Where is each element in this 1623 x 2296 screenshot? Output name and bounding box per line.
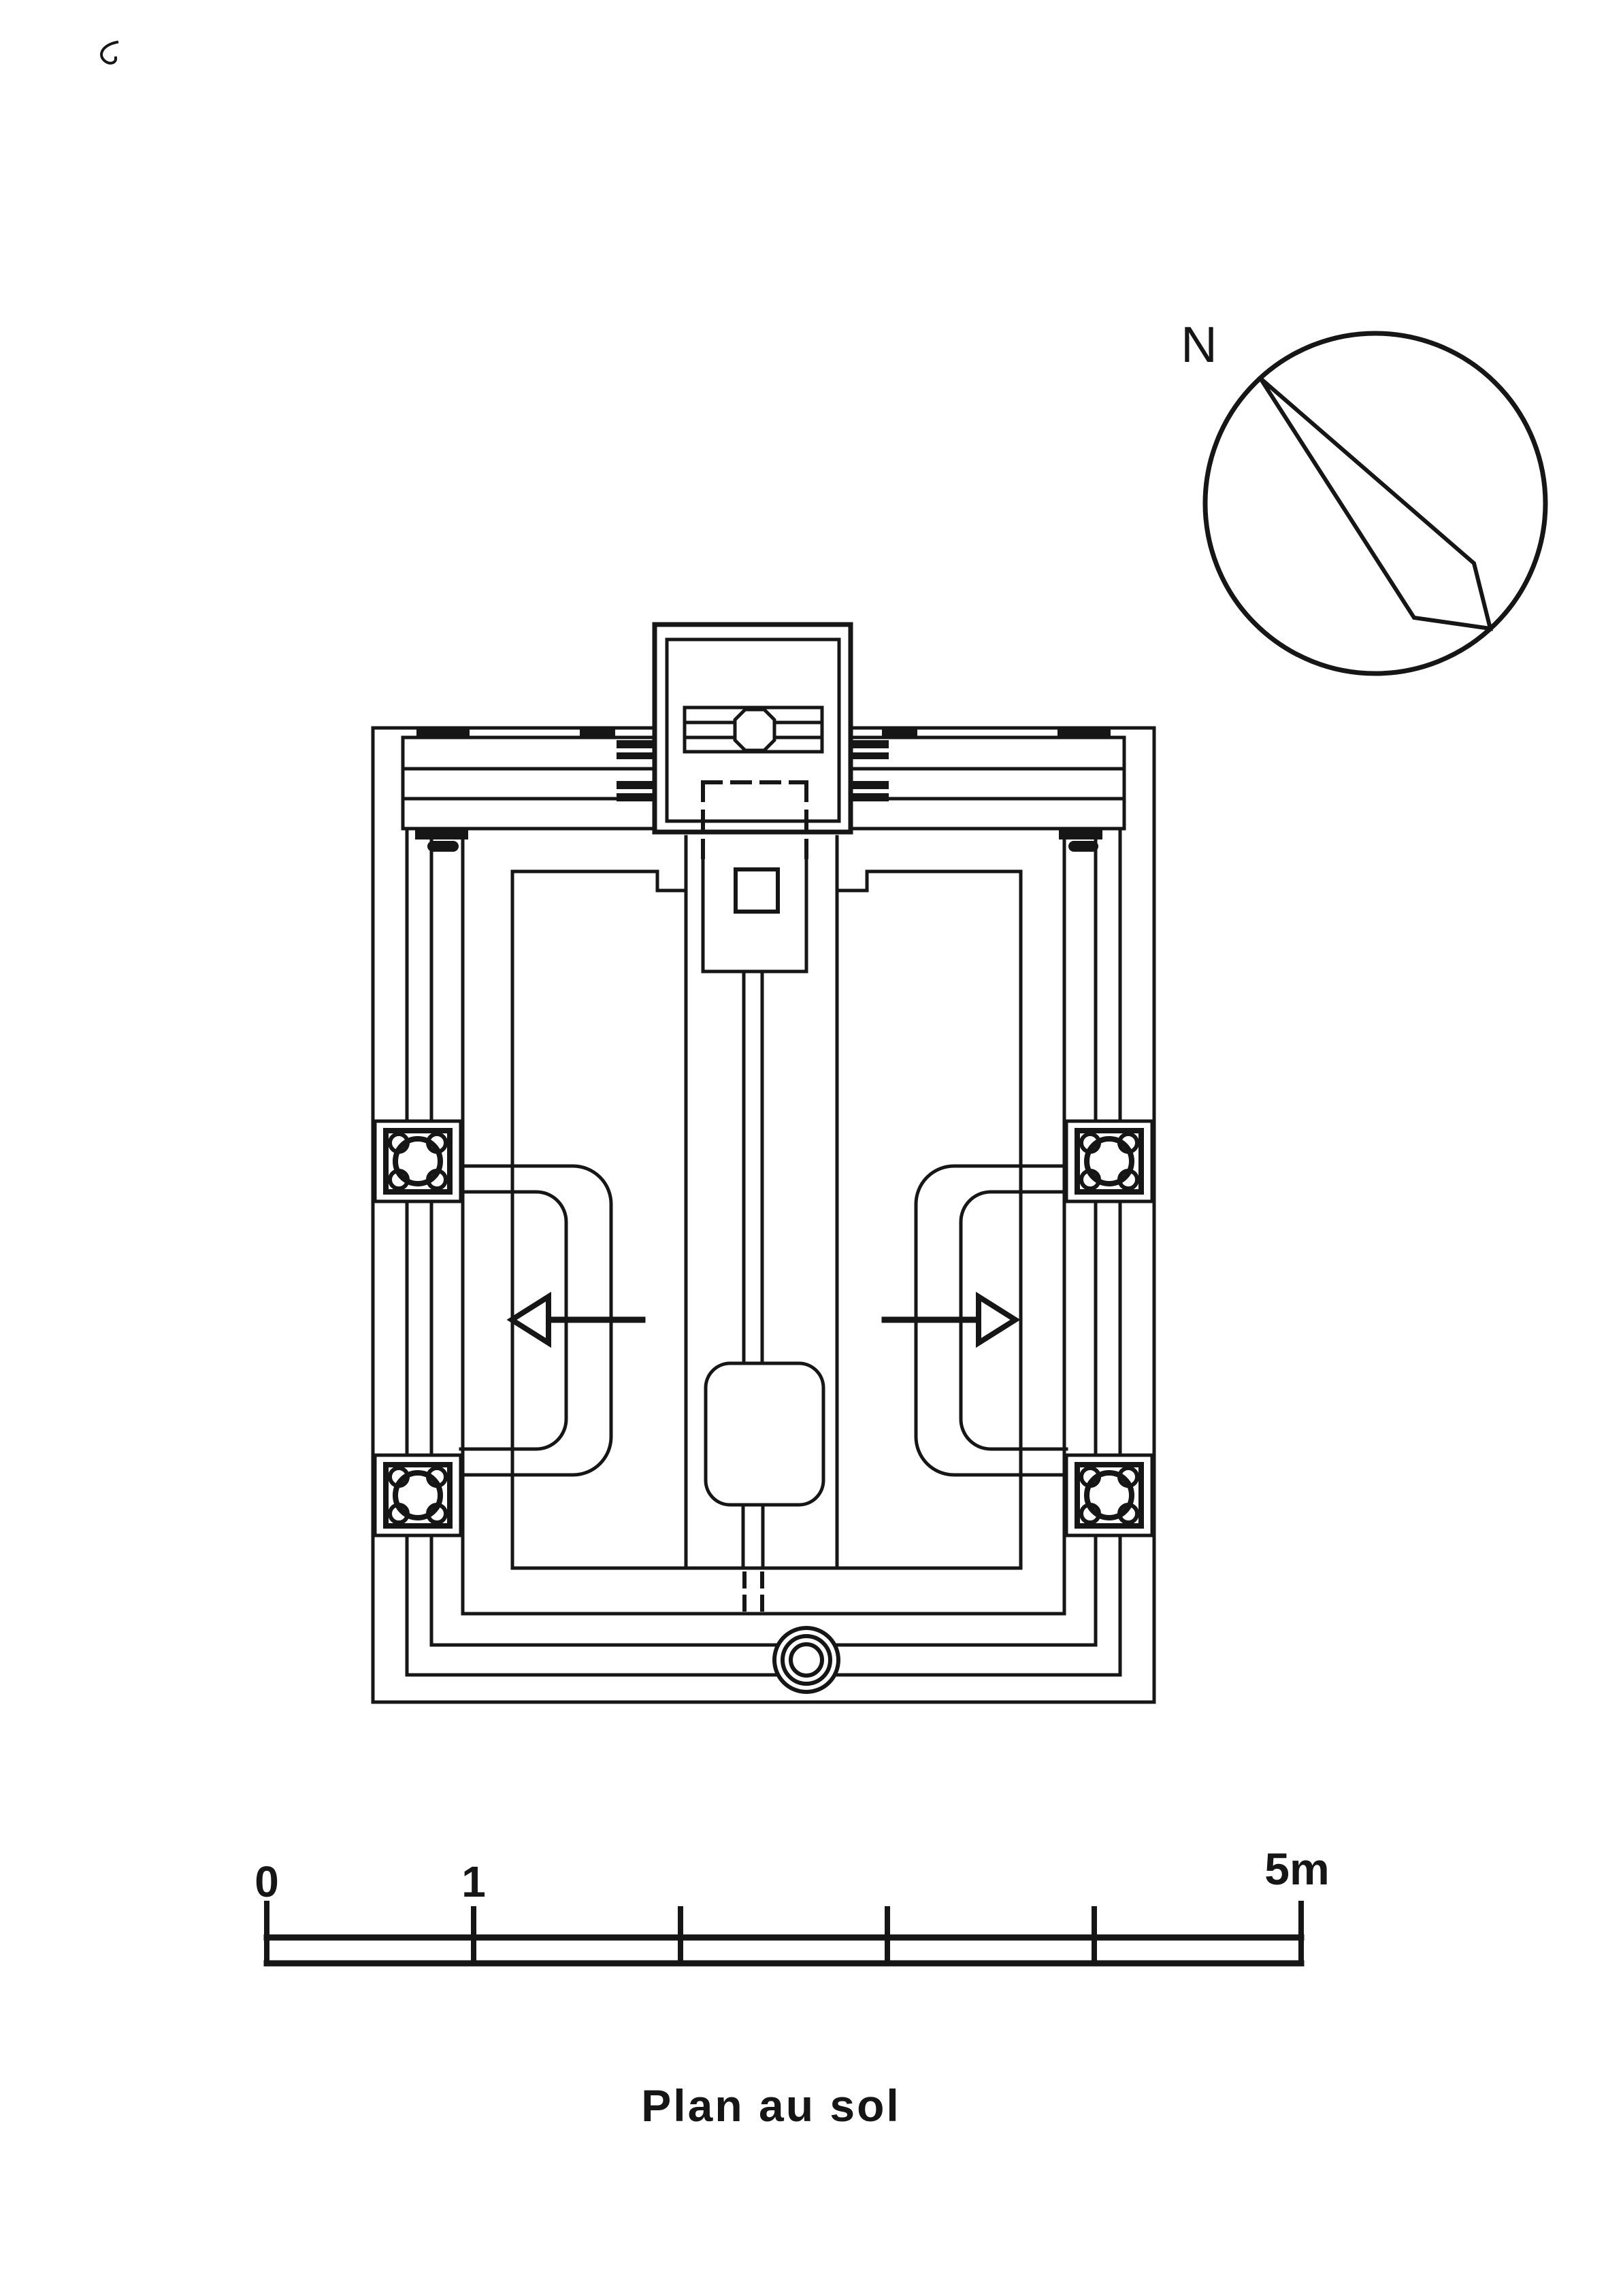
- right-direction-arrow: [885, 1297, 1015, 1343]
- porch: [703, 857, 806, 971]
- left-direction-arrow: [512, 1297, 642, 1343]
- windshaft-octagon: [735, 710, 774, 750]
- hinge-stub: [617, 752, 655, 759]
- bearing-pad-upper-left: [375, 1121, 461, 1201]
- joint-mark: [1058, 728, 1111, 738]
- neck-lines: [743, 1505, 763, 1568]
- scale-label-5m: 5m: [1264, 1844, 1329, 1894]
- joint-mark: [580, 729, 615, 738]
- bottom-pivot: [774, 1628, 838, 1692]
- hinge-stub: [851, 781, 889, 789]
- hinge-stub: [617, 793, 655, 801]
- scale-bar: 0 1 5m: [255, 1844, 1329, 1963]
- north-compass: N: [1181, 316, 1545, 673]
- porch-lines: [703, 857, 806, 971]
- bottom-beam: [407, 1614, 1120, 1675]
- compass-needle: [1260, 378, 1490, 629]
- floor-plan-drawing: N: [0, 0, 1623, 2296]
- hinge-stub: [617, 740, 655, 748]
- arrow-head-left: [512, 1297, 548, 1343]
- right-wall-beam: [1064, 829, 1120, 1675]
- pen-mark: [101, 42, 117, 63]
- bearing-pad-lower-left: [375, 1455, 461, 1535]
- dashed-neck-lines: [744, 1574, 762, 1610]
- axle-slot: [706, 971, 823, 1610]
- floor-plan: [373, 625, 1154, 1702]
- cap-structure: [655, 625, 851, 857]
- hinge-stub: [617, 781, 655, 789]
- hinge-stub: [851, 752, 889, 759]
- joint-mark: [415, 830, 468, 839]
- arrow-head-right: [979, 1297, 1015, 1343]
- joint-mark: [882, 729, 917, 738]
- bottom-beam-lines: [407, 1614, 1120, 1675]
- hinge-stub: [851, 740, 889, 748]
- tail-pit: [706, 1363, 823, 1505]
- joint-mark: [427, 841, 459, 852]
- bearing-pad-upper-right: [1066, 1121, 1152, 1201]
- left-wall-beam: [407, 829, 463, 1675]
- bearing-pad-lower-right: [1066, 1455, 1152, 1535]
- joint-mark: [1068, 841, 1098, 852]
- post-socket-square: [736, 869, 778, 912]
- north-label: N: [1181, 316, 1217, 373]
- scale-label-1: 1: [461, 1857, 486, 1906]
- joint-mark: [416, 728, 470, 738]
- joint-mark: [1059, 830, 1102, 839]
- right-wall-lines: [1064, 829, 1120, 1675]
- axle-slot-lines: [744, 971, 762, 1363]
- scanned-plan-page: N: [0, 0, 1623, 2296]
- scale-label-0: 0: [255, 1857, 279, 1906]
- hinge-stub: [851, 793, 889, 801]
- left-wall-lines: [407, 829, 463, 1675]
- plan-title: Plan au sol: [641, 2080, 900, 2131]
